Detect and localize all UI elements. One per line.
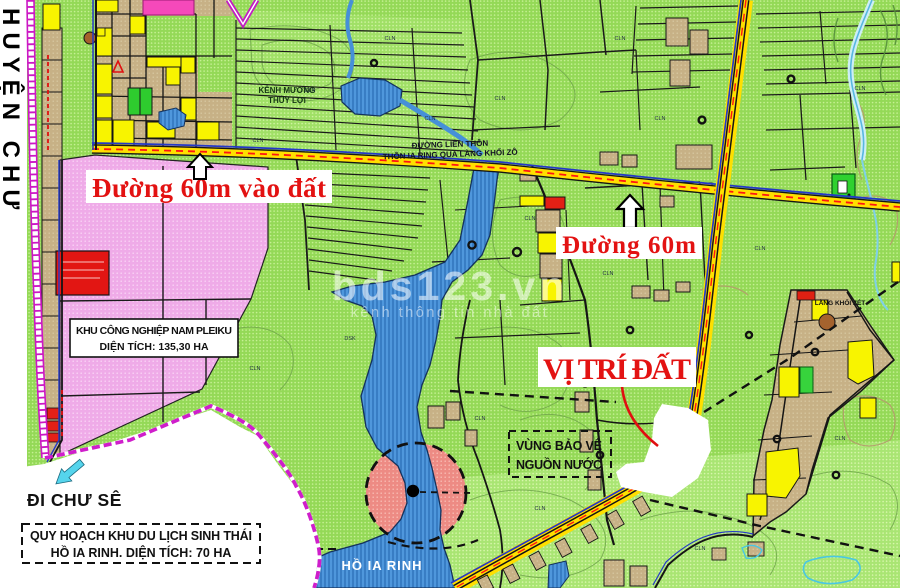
- svg-text:NGUỒN NƯỚC: NGUỒN NƯỚC: [516, 457, 602, 472]
- svg-text:CLN: CLN: [854, 86, 865, 92]
- svg-text:DSK: DSK: [344, 336, 356, 342]
- svg-text:KHU CÔNG NGHIỆP NAM PLEIKU: KHU CÔNG NGHIỆP NAM PLEIKU: [76, 324, 232, 337]
- svg-text:CLN: CLN: [614, 36, 625, 42]
- svg-text:HỒ IA RINH: HỒ IA RINH: [341, 558, 422, 573]
- svg-text:bds123.vn: bds123.vn: [332, 263, 569, 309]
- svg-text:HỒ IA RINH. DIỆN TÍCH: 70 HA: HỒ IA RINH. DIỆN TÍCH: 70 HA: [51, 545, 232, 560]
- svg-text:CLN: CLN: [474, 416, 485, 422]
- svg-text:ĐI CHƯ SÊ: ĐI CHƯ SÊ: [27, 489, 122, 510]
- svg-text:Đường 60m: Đường 60m: [562, 232, 696, 259]
- svg-text:QUY HOẠCH KHU DU LỊCH SINH THÁ: QUY HOẠCH KHU DU LỊCH SINH THÁI: [30, 528, 252, 543]
- svg-text:CLN: CLN: [754, 246, 765, 252]
- svg-text:CLN: CLN: [524, 216, 535, 222]
- svg-text:CLN: CLN: [654, 116, 665, 122]
- svg-text:CLN: CLN: [694, 546, 705, 552]
- svg-text:CLN: CLN: [424, 116, 435, 122]
- svg-text:CLN: CLN: [384, 36, 395, 42]
- svg-text:CLN: CLN: [534, 506, 545, 512]
- svg-text:kênh thông tin nhà đất: kênh thông tin nhà đất: [351, 305, 550, 321]
- svg-text:CLN: CLN: [834, 436, 845, 442]
- svg-text:CLN: CLN: [252, 138, 263, 144]
- svg-text:THỦY LỢI: THỦY LỢI: [268, 96, 306, 105]
- svg-text:HUYỆN CHƯ: HUYỆN CHƯ: [0, 8, 25, 216]
- svg-text:VÙNG BẢO VỆ: VÙNG BẢO VỆ: [516, 438, 602, 453]
- svg-text:DIỆN TÍCH: 135,30 HA: DIỆN TÍCH: 135,30 HA: [99, 340, 209, 353]
- svg-text:CLN: CLN: [602, 271, 613, 277]
- svg-text:VỊ TRÍ ĐẤT: VỊ TRÍ ĐẤT: [543, 352, 691, 386]
- svg-text:CLN: CLN: [249, 366, 260, 372]
- svg-text:Đường 60m vào đất: Đường 60m vào đất: [92, 173, 326, 203]
- svg-text:CLN: CLN: [304, 88, 315, 94]
- svg-text:CLN: CLN: [494, 96, 505, 102]
